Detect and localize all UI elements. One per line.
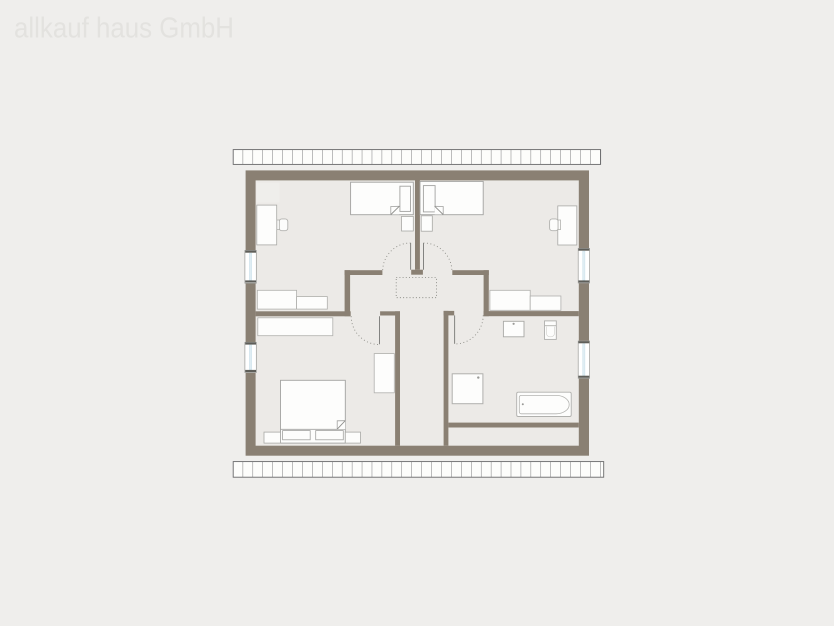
svg-text:allkauf haus GmbH: allkauf haus GmbH <box>14 13 234 45</box>
